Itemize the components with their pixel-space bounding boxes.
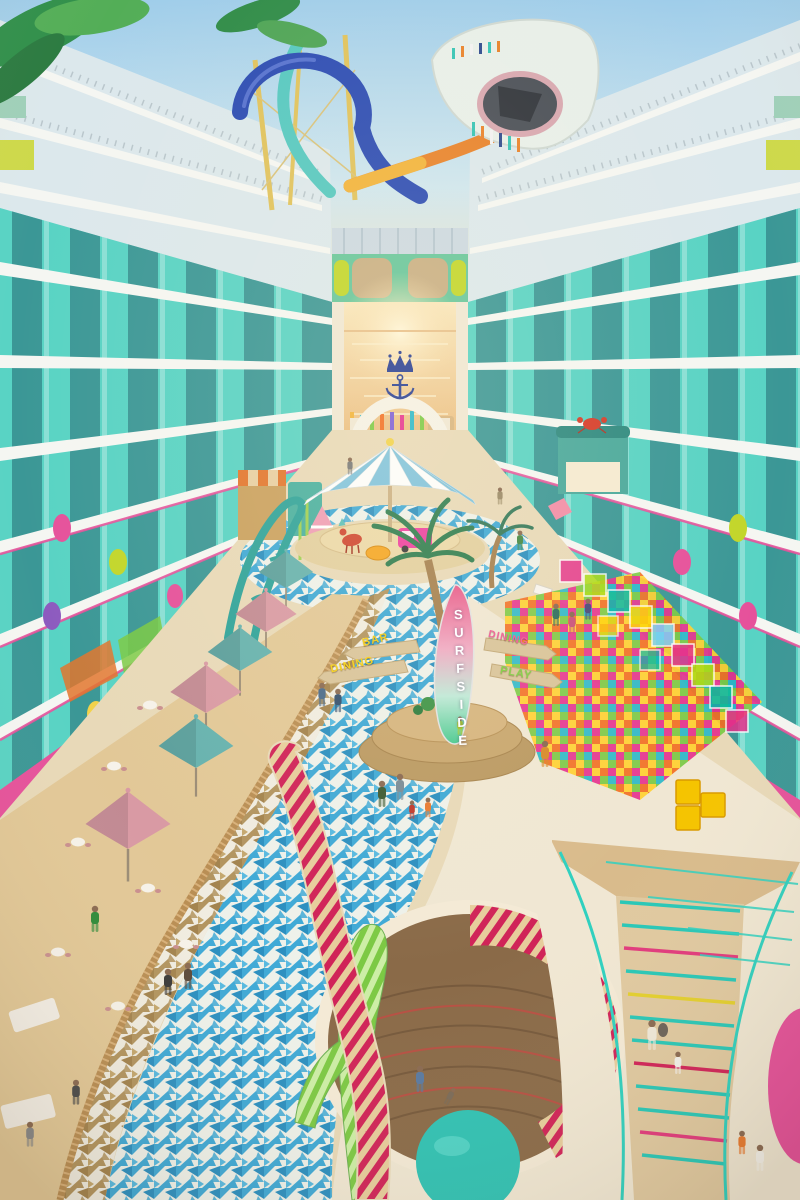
scene-canvas [0, 0, 800, 1200]
light-vignette [0, 0, 800, 1200]
atrium-rendering: SURFSIDE BAR DINING DINING PLAY [0, 0, 800, 1200]
